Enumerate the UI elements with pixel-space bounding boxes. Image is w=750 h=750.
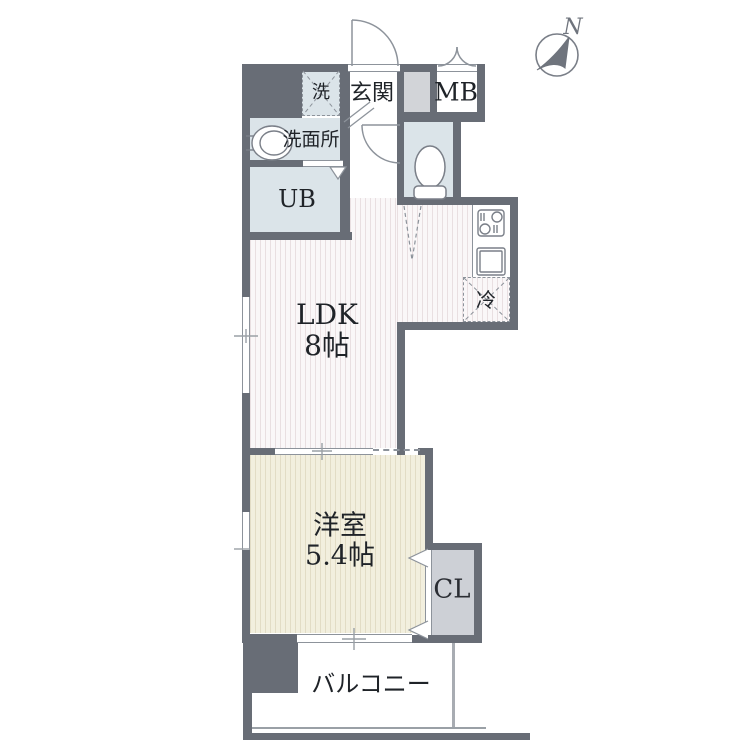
kitchen-counter	[472, 205, 510, 277]
western-room-window	[242, 512, 250, 550]
wall-left-lower	[242, 550, 250, 638]
ldk-western-sliding-door	[275, 448, 373, 455]
floor-plan: 洗 玄関 MB 洗面所 UB 冷 LDK 8帖 洋室 5.4帖 CL バルコニー…	[0, 0, 750, 750]
ldk-size: 8帖	[296, 331, 358, 362]
ldk-window	[242, 297, 250, 393]
wall-balcony-left-block	[243, 643, 298, 693]
washroom-label: 洗面所	[282, 130, 339, 151]
entrance-label: 玄関	[350, 82, 394, 106]
wall-top-left-block	[242, 64, 302, 118]
ldk-floor-hall-strip	[350, 198, 397, 240]
wall-washroom-ub	[246, 160, 303, 167]
balcony-bottom-bar	[243, 733, 530, 740]
western-room-name: 洋室	[305, 511, 375, 541]
western-room-label: 洋室 5.4帖	[305, 511, 375, 570]
unit-bath-label: UB	[278, 186, 316, 212]
wall-hall-toilet	[397, 72, 404, 205]
pipe-shaft	[404, 72, 430, 114]
meter-box-label: MB	[434, 78, 478, 106]
wall-kitchen-top	[397, 197, 518, 205]
compass-north-label: N	[563, 16, 582, 40]
wall-closet-bottom	[412, 635, 482, 643]
wall-west-right	[425, 448, 433, 550]
wall-west-top-left	[242, 448, 275, 455]
closet-label: CL	[433, 576, 470, 605]
hall-door-arc-icon	[362, 125, 400, 163]
wall-kitchen-right	[510, 197, 518, 330]
ldk-name: LDK	[296, 300, 358, 331]
wall-west-bottom-left	[242, 634, 297, 643]
wall-ldk-right	[397, 322, 405, 455]
balcony-window	[297, 634, 412, 643]
entrance-door-opening	[348, 64, 400, 72]
wall-balcony-left-strip	[243, 693, 252, 733]
west-top-dashed-opening	[373, 449, 420, 451]
compass-icon	[536, 34, 578, 76]
wall-genkan-left	[340, 64, 350, 240]
western-room-size: 5.4帖	[305, 541, 375, 571]
closet-door-strip	[425, 550, 432, 635]
ldk-label: LDK 8帖	[296, 300, 358, 362]
balcony-railing-line	[252, 727, 486, 729]
toilet-room-floor	[404, 122, 453, 197]
mb-door-opening	[437, 64, 477, 72]
entrance-door-arc-icon	[352, 20, 398, 66]
wall-toilet-right	[453, 117, 461, 205]
wall-ub-bottom	[242, 232, 352, 240]
balcony-divider	[452, 643, 455, 728]
unit-bath-door-opening	[303, 160, 343, 167]
refrigerator-label: 冷	[476, 289, 496, 311]
wall-left-upper	[242, 118, 250, 297]
balcony-label: バルコニー	[311, 671, 431, 697]
wall-mb-bottom	[402, 112, 485, 122]
wall-closet-right	[474, 543, 482, 643]
laundry-label: 洗	[312, 83, 330, 103]
wall-kitchen-bottom	[397, 322, 518, 330]
